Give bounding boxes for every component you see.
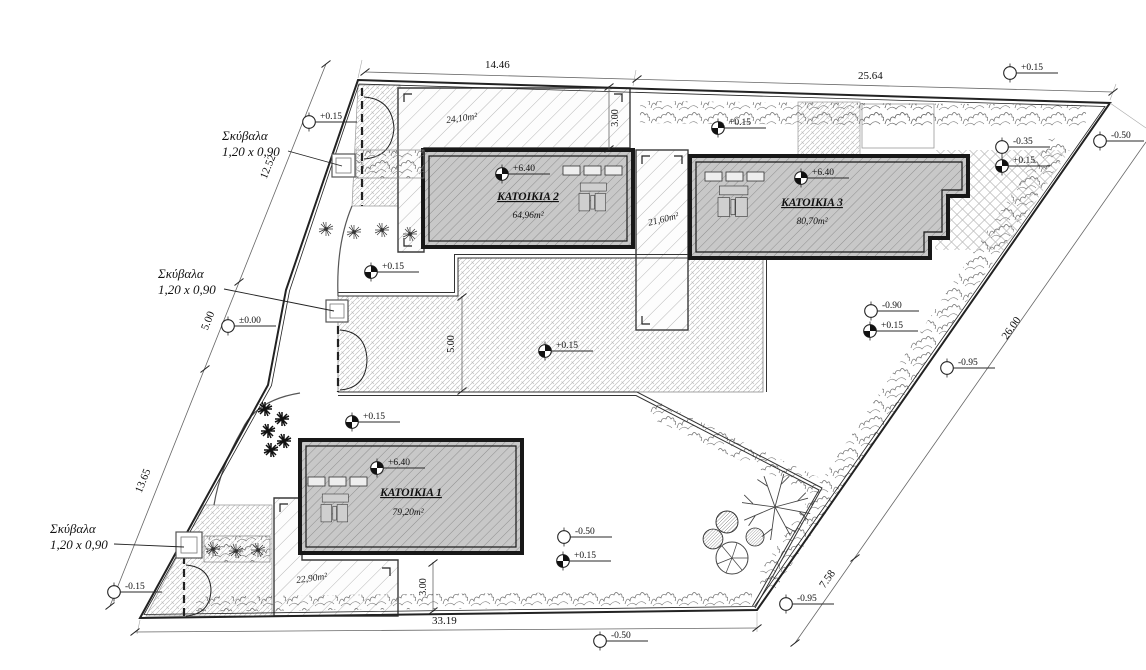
svg-text:-0.15: -0.15 <box>125 582 145 592</box>
svg-text:+6.40: +6.40 <box>812 168 834 178</box>
curb-lot1 <box>214 393 300 505</box>
windows-icon <box>705 172 764 181</box>
benchmark-icon <box>865 302 878 321</box>
svg-text:+0.15: +0.15 <box>320 112 342 122</box>
plant-icon <box>206 542 220 556</box>
annotation-text: Σκύβαλα <box>221 128 269 143</box>
level-marker: -0.95 <box>780 594 834 614</box>
svg-text:+6.40: +6.40 <box>513 164 535 174</box>
sofa-set-icon <box>321 494 348 522</box>
svg-text:-0.50: -0.50 <box>611 631 631 641</box>
svg-text:+0.15: +0.15 <box>1013 156 1035 166</box>
benchmark-icon <box>557 552 570 571</box>
dim-label: 33.19 <box>432 615 457 627</box>
leader-line <box>114 544 184 547</box>
level-marker: +0.15 <box>864 321 918 341</box>
annotation-text: 1,20 x 0,90 <box>50 537 108 552</box>
building-area: 64,96m² <box>512 211 543 221</box>
dim-label: 3.00 <box>610 109 621 127</box>
yard-katoikia3 <box>636 150 688 330</box>
trash-label-middle: Σκύβαλα 1,20 x 0,90 <box>157 266 334 311</box>
svg-text:+6.40: +6.40 <box>388 458 410 468</box>
dim-label: 26.00 <box>1000 314 1024 342</box>
shrub-icon <box>277 434 291 448</box>
trash-label-top: Σκύβαλα 1,20 x 0,90 <box>221 128 342 166</box>
building-name: ΚΑΤΟΙΚΙΑ 2 <box>496 191 559 203</box>
plant-icon <box>347 225 361 239</box>
annotation-text: 1,20 x 0,90 <box>158 282 216 297</box>
benchmark-icon <box>222 317 235 336</box>
svg-text:+0.15: +0.15 <box>729 118 751 128</box>
svg-text:+0.15: +0.15 <box>574 551 596 561</box>
plant-icon <box>319 222 333 236</box>
benchmark-icon <box>1004 64 1017 83</box>
plant-icon <box>403 227 417 241</box>
svg-text:+0.15: +0.15 <box>382 262 404 272</box>
shrub-icon <box>261 424 275 438</box>
level-marker: -0.15 <box>108 582 162 602</box>
sofa-set-icon <box>718 186 748 217</box>
level-marker: +0.15 <box>346 412 400 432</box>
hedge-inner-fence <box>650 408 816 486</box>
hedge-top <box>640 112 1086 116</box>
svg-text:-0.95: -0.95 <box>797 594 817 604</box>
trash-bin-top <box>332 154 355 177</box>
dim-label: 3.00 <box>418 578 429 596</box>
tree-pinwheel-icon <box>716 542 748 574</box>
level-marker: -0.95 <box>941 358 995 378</box>
benchmark-icon <box>303 113 316 132</box>
paving-gate-top <box>352 85 400 206</box>
level-marker: +0.15 <box>1004 63 1058 83</box>
shrub-icon <box>264 443 278 457</box>
curb-upper <box>338 206 352 296</box>
plant-icon <box>251 543 265 557</box>
svg-text:+0.15: +0.15 <box>881 321 903 331</box>
svg-text:-0.90: -0.90 <box>882 301 902 311</box>
hedge-bottom <box>196 598 752 604</box>
building-katoikia-3: ΚΑΤΟΙΚΙΑ 3 80,70m² +6.40 <box>690 156 968 258</box>
windows-icon <box>308 477 367 486</box>
shrub-icon <box>275 412 289 426</box>
building-name: ΚΑΤΟΙΚΙΑ 3 <box>780 197 843 209</box>
benchmark-icon <box>1094 132 1107 151</box>
trash-label-bottom: Σκύβαλα 1,20 x 0,90 <box>49 521 184 552</box>
annotation-text: Σκύβαλα <box>157 266 205 281</box>
planter-top <box>356 150 424 178</box>
plant-icon <box>375 223 389 237</box>
level-marker: +0.15 <box>365 262 419 282</box>
benchmark-icon <box>780 595 793 614</box>
benchmark-icon <box>346 413 359 432</box>
building-katoikia-1: ΚΑΤΟΙΚΙΑ 1 79,20m² +6.40 <box>300 440 522 553</box>
driveway <box>338 258 763 392</box>
benchmark-icon <box>365 263 378 282</box>
dim-label: 13.65 <box>133 467 154 495</box>
level-marker: -0.50 <box>1094 131 1144 151</box>
level-marker: -0.50 <box>594 631 648 651</box>
benchmark-icon <box>941 359 954 378</box>
tree-canopy-icon <box>716 511 738 533</box>
level-marker: -0.50 <box>558 527 612 547</box>
tree-canopy-icon <box>746 528 764 546</box>
annotation-text: 1,20 x 0,90 <box>222 144 280 159</box>
benchmark-icon <box>558 528 571 547</box>
svg-text:-0.35: -0.35 <box>1013 137 1033 147</box>
sofa-set-icon <box>579 183 606 211</box>
level-marker: ±0.00 <box>222 316 276 336</box>
svg-text:+0.15: +0.15 <box>363 412 385 422</box>
benchmark-icon <box>864 322 877 341</box>
dimension-bottom: 33.19 <box>131 615 762 636</box>
dim-label: 25.64 <box>858 70 883 82</box>
level-marker: -0.90 <box>865 301 919 321</box>
trash-bin-bottom <box>176 532 202 558</box>
building-name: ΚΑΤΟΙΚΙΑ 1 <box>379 487 442 499</box>
level-marker: +0.15 <box>557 551 611 571</box>
building-area: 80,70m² <box>796 217 827 227</box>
site-plan-drawing: ΚΑΤΟΙΚΙΑ 2 64,96m² +6.40 ΚΑΤΟΙΚΙΑ 3 80,7… <box>0 0 1146 670</box>
svg-text:-0.95: -0.95 <box>958 358 978 368</box>
building-area: 79,20m² <box>392 508 423 518</box>
plant-icon <box>229 544 243 558</box>
site-plan-canvas: ΚΑΤΟΙΚΙΑ 2 64,96m² +6.40 ΚΑΤΟΙΚΙΑ 3 80,7… <box>0 0 1146 670</box>
svg-text:±0.00: ±0.00 <box>239 316 261 326</box>
svg-text:+0.15: +0.15 <box>1021 63 1043 73</box>
dim-label: 14.46 <box>485 59 510 71</box>
svg-text:-0.50: -0.50 <box>575 527 595 537</box>
tree-canopy-icon <box>703 529 723 549</box>
trash-bin-middle <box>326 300 348 322</box>
dim-label: 5.00 <box>446 335 457 353</box>
leader-line <box>224 289 334 311</box>
dim-label: 5.00 <box>199 309 218 332</box>
benchmark-icon <box>594 632 607 651</box>
dim-label: 7.58 <box>817 568 838 591</box>
shrub-icon <box>258 402 272 416</box>
svg-text:+0.15: +0.15 <box>556 341 578 351</box>
svg-text:-0.50: -0.50 <box>1111 131 1131 141</box>
windows-icon <box>563 166 622 175</box>
annotation-text: Σκύβαλα <box>49 521 97 536</box>
building-katoikia-2: ΚΑΤΟΙΚΙΑ 2 64,96m² +6.40 <box>423 150 633 247</box>
